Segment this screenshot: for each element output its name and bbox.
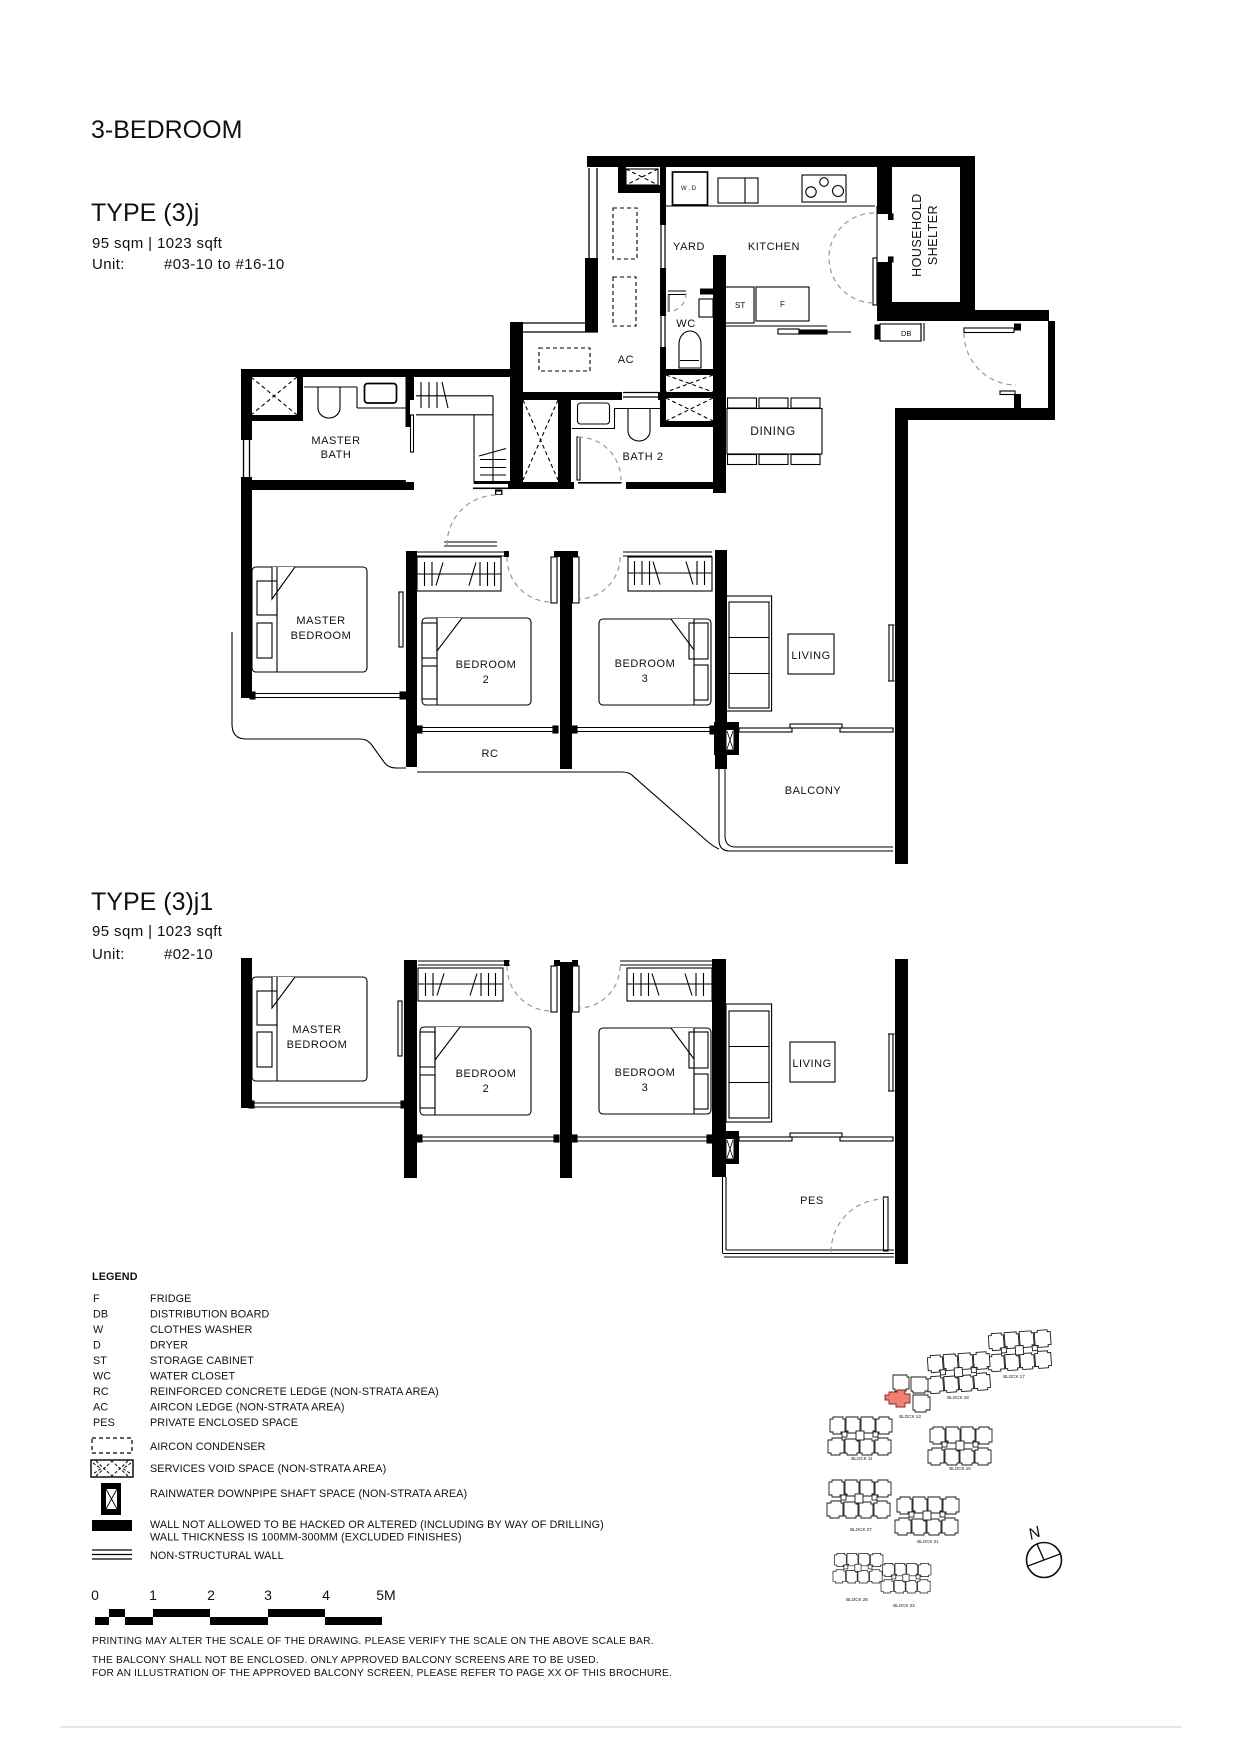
svg-text:AC: AC bbox=[618, 354, 634, 366]
svg-text:HOUSEHOLD: HOUSEHOLD bbox=[910, 193, 924, 277]
svg-text:3-BEDROOM: 3-BEDROOM bbox=[91, 116, 242, 144]
svg-text:3: 3 bbox=[642, 1082, 649, 1094]
svg-text:AC: AC bbox=[93, 1402, 108, 1414]
svg-text:W . D: W . D bbox=[681, 186, 697, 192]
svg-text:F: F bbox=[93, 1293, 100, 1305]
svg-text:DB: DB bbox=[93, 1309, 108, 1321]
svg-text:THE BALCONY SHALL NOT BE ENCLO: THE BALCONY SHALL NOT BE ENCLOSED. ONLY … bbox=[92, 1655, 599, 1666]
svg-text:WALL NOT ALLOWED TO BE HACKED: WALL NOT ALLOWED TO BE HACKED OR ALTERED… bbox=[150, 1519, 604, 1531]
svg-text:TYPE (3)j1: TYPE (3)j1 bbox=[91, 888, 213, 916]
svg-text:LIVING: LIVING bbox=[791, 650, 830, 662]
svg-text:BLOCK 11: BLOCK 11 bbox=[851, 1456, 873, 1461]
svg-text:WC: WC bbox=[676, 318, 695, 330]
svg-text:RC: RC bbox=[482, 748, 499, 760]
svg-text:BLOCK 21: BLOCK 21 bbox=[917, 1539, 939, 1544]
svg-text:BEDROOM: BEDROOM bbox=[615, 1067, 676, 1079]
svg-text:KITCHEN: KITCHEN bbox=[748, 241, 800, 253]
svg-text:W: W bbox=[93, 1324, 104, 1336]
svg-text:DB: DB bbox=[901, 329, 911, 338]
svg-text:95 sqm | 1023 sqft: 95 sqm | 1023 sqft bbox=[92, 235, 223, 252]
svg-text:SHELTER: SHELTER bbox=[926, 205, 940, 265]
svg-text:D: D bbox=[93, 1340, 101, 1352]
svg-text:TYPE (3)j: TYPE (3)j bbox=[91, 199, 199, 227]
svg-text:3: 3 bbox=[642, 673, 649, 685]
svg-text:AIRCON CONDENSER: AIRCON CONDENSER bbox=[150, 1441, 266, 1453]
svg-text:BLOCK 16: BLOCK 16 bbox=[949, 1466, 971, 1471]
svg-text:STORAGE CABINET: STORAGE CABINET bbox=[150, 1355, 254, 1367]
svg-text:DRYER: DRYER bbox=[150, 1340, 188, 1352]
svg-text:ST: ST bbox=[93, 1355, 107, 1367]
svg-text:BEDROOM: BEDROOM bbox=[287, 1039, 348, 1051]
svg-text:BLOCK 13: BLOCK 13 bbox=[899, 1414, 921, 1419]
svg-text:AIRCON LEDGE (NON-STRATA AREA): AIRCON LEDGE (NON-STRATA AREA) bbox=[150, 1402, 345, 1414]
svg-text:3: 3 bbox=[264, 1587, 272, 1603]
svg-text:#02-10: #02-10 bbox=[164, 946, 213, 963]
svg-text:BATH: BATH bbox=[321, 449, 352, 461]
svg-text:F: F bbox=[780, 300, 785, 309]
svg-text:MASTER: MASTER bbox=[311, 435, 360, 447]
svg-text:BEDROOM: BEDROOM bbox=[456, 659, 517, 671]
svg-text:1: 1 bbox=[149, 1587, 157, 1603]
svg-text:5M: 5M bbox=[376, 1587, 395, 1603]
svg-text:YARD: YARD bbox=[673, 241, 705, 253]
svg-text:MASTER: MASTER bbox=[292, 1024, 341, 1036]
svg-text:2: 2 bbox=[207, 1587, 215, 1603]
svg-text:WC: WC bbox=[93, 1371, 111, 1383]
svg-text:2: 2 bbox=[483, 674, 490, 686]
svg-text:4: 4 bbox=[322, 1587, 330, 1603]
svg-text:#03-10 to #16-10: #03-10 to #16-10 bbox=[164, 256, 285, 273]
svg-text:REINFORCED CONCRETE LEDGE (NON: REINFORCED CONCRETE LEDGE (NON-STRATA AR… bbox=[150, 1386, 439, 1398]
svg-text:0: 0 bbox=[91, 1587, 99, 1603]
svg-text:FRIDGE: FRIDGE bbox=[150, 1293, 191, 1305]
svg-text:BLOCK 28: BLOCK 28 bbox=[846, 1597, 868, 1602]
svg-text:Unit:: Unit: bbox=[92, 256, 125, 273]
svg-text:PRINTING MAY ALTER THE SCALE O: PRINTING MAY ALTER THE SCALE OF THE DRAW… bbox=[92, 1636, 654, 1647]
svg-text:95 sqm | 1023 sqft: 95 sqm | 1023 sqft bbox=[92, 923, 223, 940]
svg-text:SERVICES VOID SPACE (NON-STRAT: SERVICES VOID SPACE (NON-STRATA AREA) bbox=[150, 1463, 386, 1475]
svg-text:BEDROOM: BEDROOM bbox=[291, 630, 352, 642]
svg-text:2: 2 bbox=[483, 1083, 490, 1095]
svg-text:PES: PES bbox=[800, 1195, 824, 1207]
svg-text:RC: RC bbox=[93, 1386, 109, 1398]
svg-text:BLOCK 17: BLOCK 17 bbox=[1003, 1374, 1025, 1379]
svg-text:BEDROOM: BEDROOM bbox=[456, 1068, 517, 1080]
svg-text:MASTER: MASTER bbox=[296, 615, 345, 627]
svg-text:PRIVATE ENCLOSED SPACE: PRIVATE ENCLOSED SPACE bbox=[150, 1417, 298, 1429]
svg-text:BEDROOM: BEDROOM bbox=[615, 658, 676, 670]
svg-text:BLOCK 22: BLOCK 22 bbox=[893, 1603, 915, 1608]
svg-text:NON-STRUCTURAL WALL: NON-STRUCTURAL WALL bbox=[150, 1550, 284, 1562]
svg-text:PES: PES bbox=[93, 1417, 115, 1429]
svg-text:DINING: DINING bbox=[750, 424, 796, 438]
svg-text:BLOCK 18: BLOCK 18 bbox=[947, 1395, 969, 1400]
svg-text:BATH 2: BATH 2 bbox=[623, 451, 664, 463]
svg-text:DISTRIBUTION BOARD: DISTRIBUTION BOARD bbox=[150, 1309, 269, 1321]
svg-text:Unit:: Unit: bbox=[92, 946, 125, 963]
svg-text:LEGEND: LEGEND bbox=[92, 1271, 138, 1283]
svg-text:BALCONY: BALCONY bbox=[785, 785, 842, 797]
svg-text:ST: ST bbox=[735, 301, 745, 310]
svg-text:WATER CLOSET: WATER CLOSET bbox=[150, 1371, 235, 1383]
svg-text:CLOTHES WASHER: CLOTHES WASHER bbox=[150, 1324, 252, 1336]
svg-text:LIVING: LIVING bbox=[792, 1058, 831, 1070]
svg-text:BLOCK 27: BLOCK 27 bbox=[850, 1527, 872, 1532]
svg-text:FOR AN ILLUSTRATION OF THE APP: FOR AN ILLUSTRATION OF THE APPROVED BALC… bbox=[92, 1668, 672, 1679]
svg-text:RAINWATER DOWNPIPE SHAFT SPACE: RAINWATER DOWNPIPE SHAFT SPACE (NON-STRA… bbox=[150, 1488, 467, 1500]
svg-text:WALL THICKNESS IS 100MM-300MM: WALL THICKNESS IS 100MM-300MM (EXCLUDED … bbox=[150, 1532, 462, 1544]
